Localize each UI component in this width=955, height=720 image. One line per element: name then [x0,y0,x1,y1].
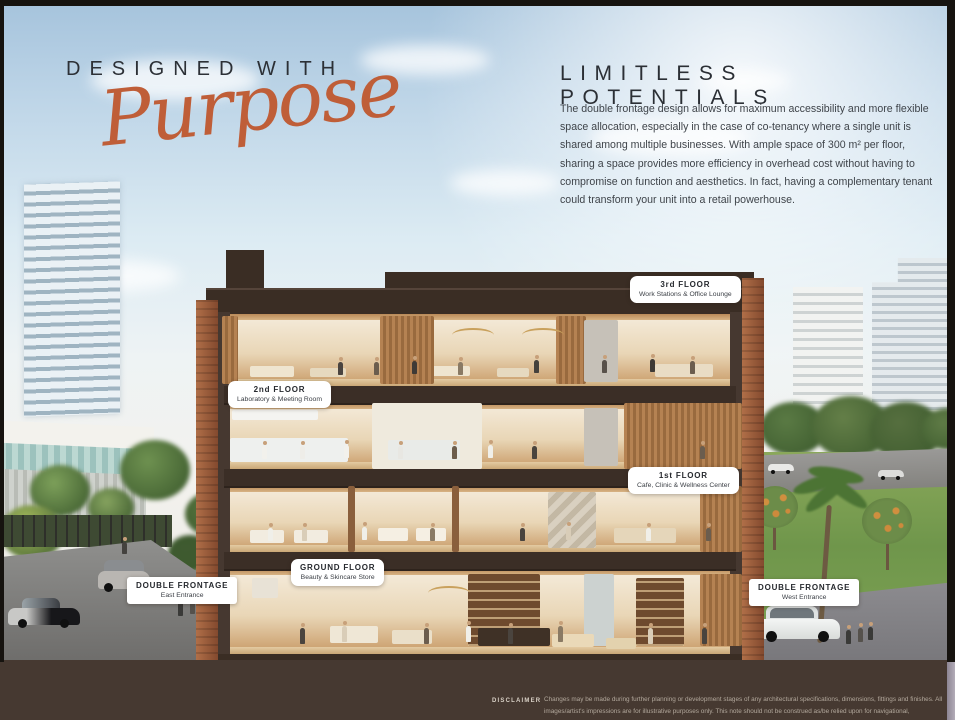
tree-trunk [886,540,889,570]
furniture [250,530,284,543]
furniture [584,408,618,466]
person-figure [488,445,493,458]
pendant-light [522,328,564,342]
person-figure [458,362,463,375]
person-figure [374,362,379,375]
brick-pilaster-left [196,300,218,660]
entrance-label-east: DOUBLE FRONTAGE East Entrance [127,577,237,604]
furniture [232,410,318,420]
person-figure [690,361,695,374]
floor-label-subtitle: Cafe, Clinic & Wellness Center [637,482,730,489]
person-figure [122,542,127,554]
furniture [430,366,470,376]
person-figure [558,626,563,642]
furniture [655,364,713,377]
person-figure [424,628,429,644]
furniture [378,528,408,541]
furniture [548,492,596,548]
person-figure [646,528,651,541]
furniture [478,628,550,646]
person-figure [412,361,417,374]
black-sedan [8,598,80,628]
disclaimer-label: DISCLAIMER [492,698,541,704]
pendant-light [428,586,470,600]
disclaimer-text: Changes may be made during further plann… [544,694,944,720]
furniture [624,403,742,469]
floor-label-subtitle: Beauty & Skincare Store [300,574,375,581]
person-figure [858,628,863,642]
entrance-label-west: DOUBLE FRONTAGE West Entrance [749,579,859,606]
floor-label-ground: GROUND FLOOR Beauty & Skincare Store [291,559,384,586]
floor-label-subtitle: Laboratory & Meeting Room [237,396,322,403]
distant-car-1 [768,462,794,474]
floor-label-3rd: 3rd FLOOR Work Stations & Office Lounge [630,276,741,303]
furniture [584,320,618,382]
body-paragraph: The double frontage design allows for ma… [560,100,938,209]
person-figure [362,527,367,540]
person-figure [466,626,471,642]
person-figure [520,528,525,541]
furniture [348,486,355,552]
entrance-label-title: DOUBLE FRONTAGE [758,583,850,592]
furniture [222,316,238,384]
person-figure [344,445,349,458]
person-figure [700,446,705,459]
white-suv [756,606,840,642]
entrance-label-subtitle: West Entrance [758,594,850,601]
furniture [252,578,278,598]
entrance-label-title: DOUBLE FRONTAGE [136,581,228,590]
person-figure [300,628,305,644]
furniture [556,316,586,384]
background-tower-left [24,181,120,416]
furniture [614,528,676,543]
person-figure [648,628,653,644]
furniture [700,486,742,552]
distant-car-2 [878,468,904,480]
frame-edge-right [947,0,955,662]
furniture [330,626,378,643]
person-figure [868,627,873,640]
person-figure [650,359,655,372]
person-figure [430,528,435,541]
floor-label-title: 2nd FLOOR [237,385,322,394]
person-figure [300,446,305,459]
person-figure [398,446,403,459]
person-figure [268,528,273,541]
person-figure [302,528,307,541]
entrance-label-subtitle: East Entrance [136,592,228,599]
pendant-light [452,328,494,342]
floor-label-1st: 1st FLOOR Cafe, Clinic & Wellness Center [628,467,739,494]
furniture [497,368,529,377]
person-figure [602,360,607,373]
furniture [250,366,294,377]
person-figure [338,362,343,375]
person-figure [452,446,457,459]
page-edge-strip [947,660,955,720]
person-figure [532,446,537,459]
person-figure [534,360,539,373]
furniture [294,530,328,543]
floor-label-subtitle: Work Stations & Office Lounge [639,291,732,298]
frame-edge-top [0,0,955,6]
person-figure [702,628,707,644]
person-figure [566,527,571,540]
brochure-page: 3rd FLOOR Work Stations & Office Lounge … [0,0,955,720]
floor-label-title: 1st FLOOR [637,471,730,480]
person-figure [508,628,513,644]
floor-label-title: GROUND FLOOR [300,563,375,572]
floor-label-title: 3rd FLOOR [639,280,732,289]
floor-label-2nd: 2nd FLOOR Laboratory & Meeting Room [228,381,331,408]
furniture [606,638,636,649]
furniture [636,578,684,646]
furniture [230,438,348,462]
furniture [380,316,434,384]
furniture [452,486,459,552]
flowering-tree [862,498,912,544]
background-buildings-right [793,287,863,407]
person-figure [846,630,851,644]
frame-edge-left [0,0,4,662]
person-figure [262,446,267,459]
person-figure [342,626,347,642]
person-figure [706,528,711,541]
